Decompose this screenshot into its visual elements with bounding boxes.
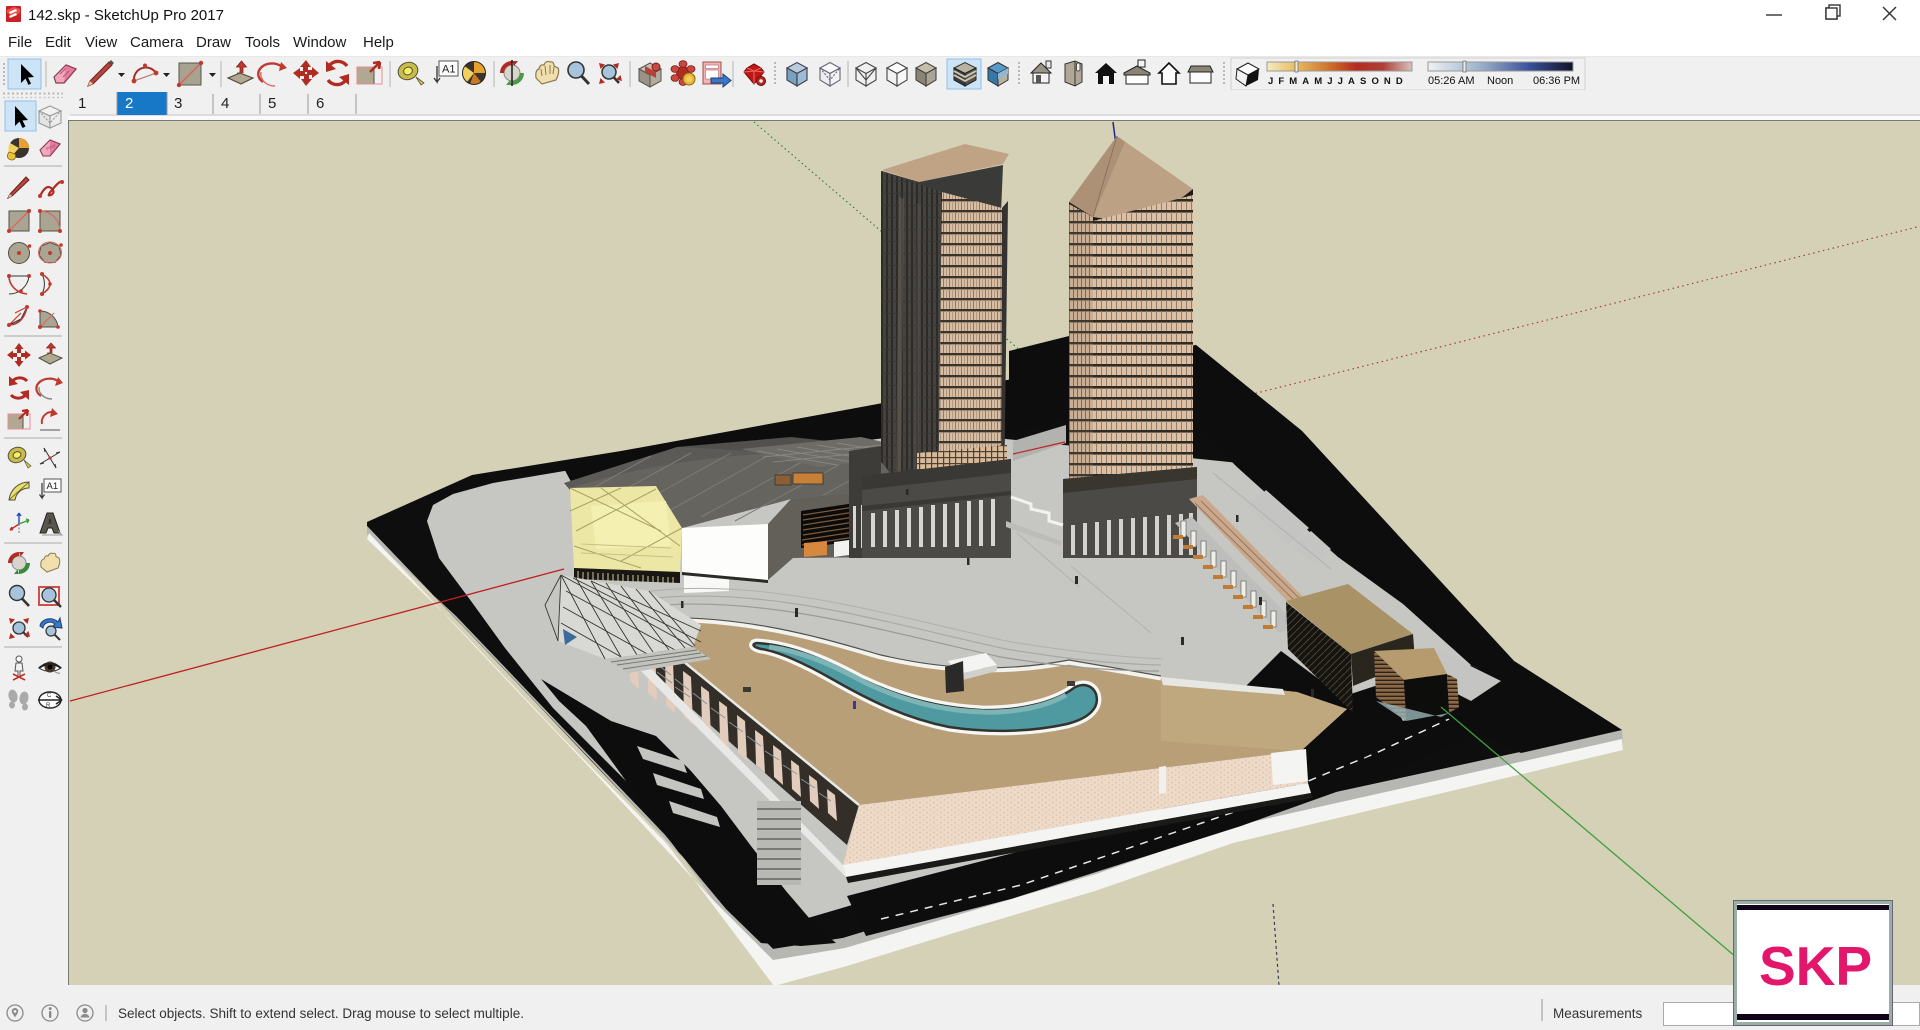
svg-text:R: R: [46, 703, 51, 709]
svg-text:6: 6: [316, 95, 324, 112]
svg-text:Noon: Noon: [1487, 75, 1513, 87]
svg-text:C: C: [47, 693, 52, 699]
svg-text:05:26 AM: 05:26 AM: [1428, 75, 1474, 87]
svg-text:A1: A1: [47, 481, 59, 492]
svg-text:4: 4: [221, 95, 229, 112]
svg-text:06:36 PM: 06:36 PM: [1533, 75, 1580, 87]
svg-text:2: 2: [125, 95, 133, 112]
svg-text:1: 1: [78, 95, 86, 112]
svg-text:3: 3: [174, 95, 182, 112]
svg-text:JFMAMJJASOND: JFMAMJJASOND: [1268, 76, 1408, 87]
svg-text:A1: A1: [442, 64, 455, 76]
svg-text:5: 5: [268, 95, 276, 112]
